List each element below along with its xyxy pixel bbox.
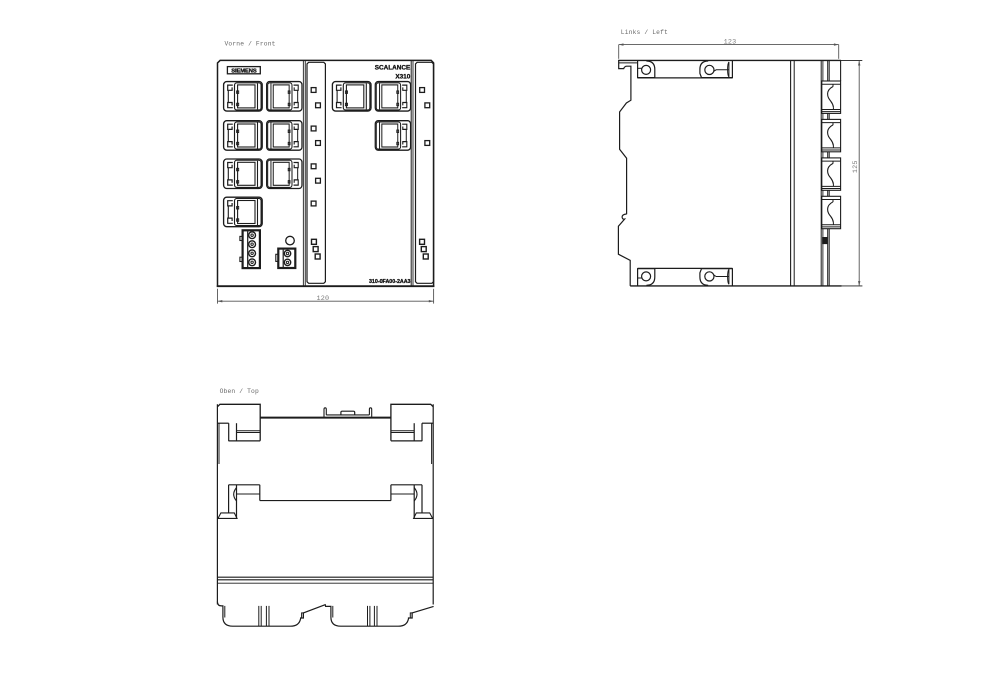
- svg-text:Vorne / Front: Vorne / Front: [225, 41, 276, 48]
- svg-text:125: 125: [852, 160, 860, 173]
- svg-text:123: 123: [724, 39, 737, 47]
- svg-text:Oben / Top: Oben / Top: [220, 388, 259, 395]
- svg-text:120: 120: [316, 295, 329, 303]
- svg-text:Links / Left: Links / Left: [621, 29, 668, 36]
- svg-text:SCALANCE: SCALANCE: [375, 65, 411, 72]
- svg-text:SIEMENS: SIEMENS: [231, 69, 257, 75]
- svg-text:310-0FA00-2AA3: 310-0FA00-2AA3: [369, 279, 411, 285]
- svg-text:X310: X310: [395, 73, 410, 80]
